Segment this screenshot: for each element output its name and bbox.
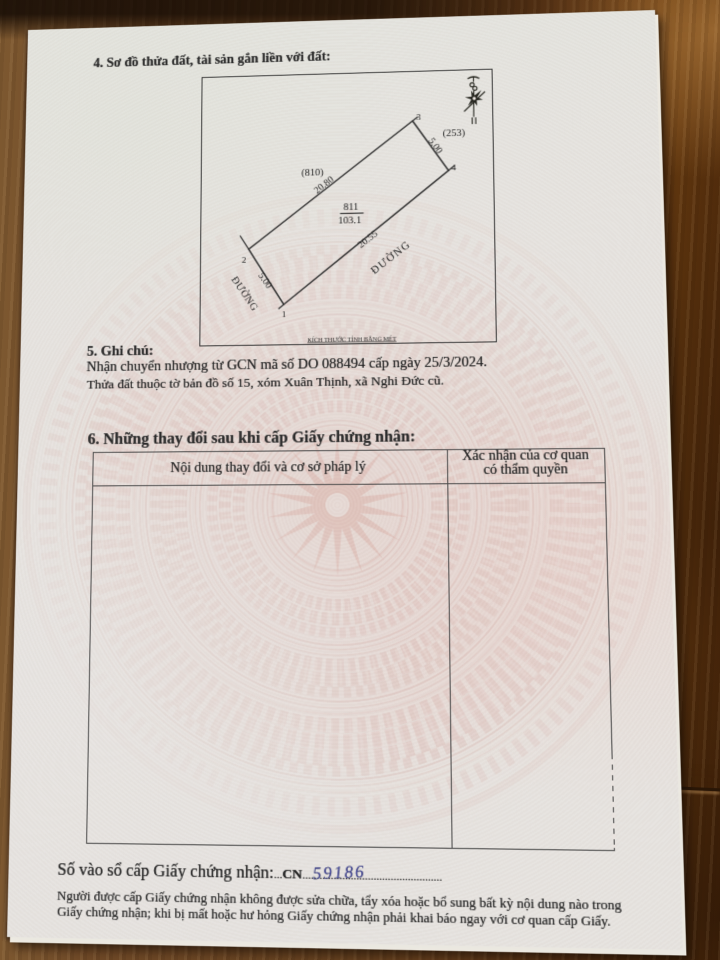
svg-text:ĐƯỜNG: ĐƯỜNG — [368, 238, 413, 277]
svg-text:811: 811 — [343, 202, 358, 213]
svg-text:20.55: 20.55 — [356, 229, 380, 251]
svg-text:103.1: 103.1 — [338, 215, 361, 226]
svg-text:3: 3 — [416, 112, 421, 122]
svg-text:ĐƯỜNG: ĐƯỜNG — [229, 274, 262, 314]
svg-text:(810): (810) — [301, 168, 324, 179]
svg-text:5.00: 5.00 — [426, 136, 445, 156]
svg-text:(253): (253) — [443, 128, 466, 139]
svg-text:1: 1 — [282, 309, 286, 319]
svg-text:KÍCH THƯỚC TÍNH BẰNG MÉT: KÍCH THƯỚC TÍNH BẰNG MÉT — [307, 334, 396, 343]
svg-text:5.00: 5.00 — [256, 271, 274, 291]
svg-text:4: 4 — [451, 163, 456, 173]
svg-text:2: 2 — [242, 255, 246, 265]
